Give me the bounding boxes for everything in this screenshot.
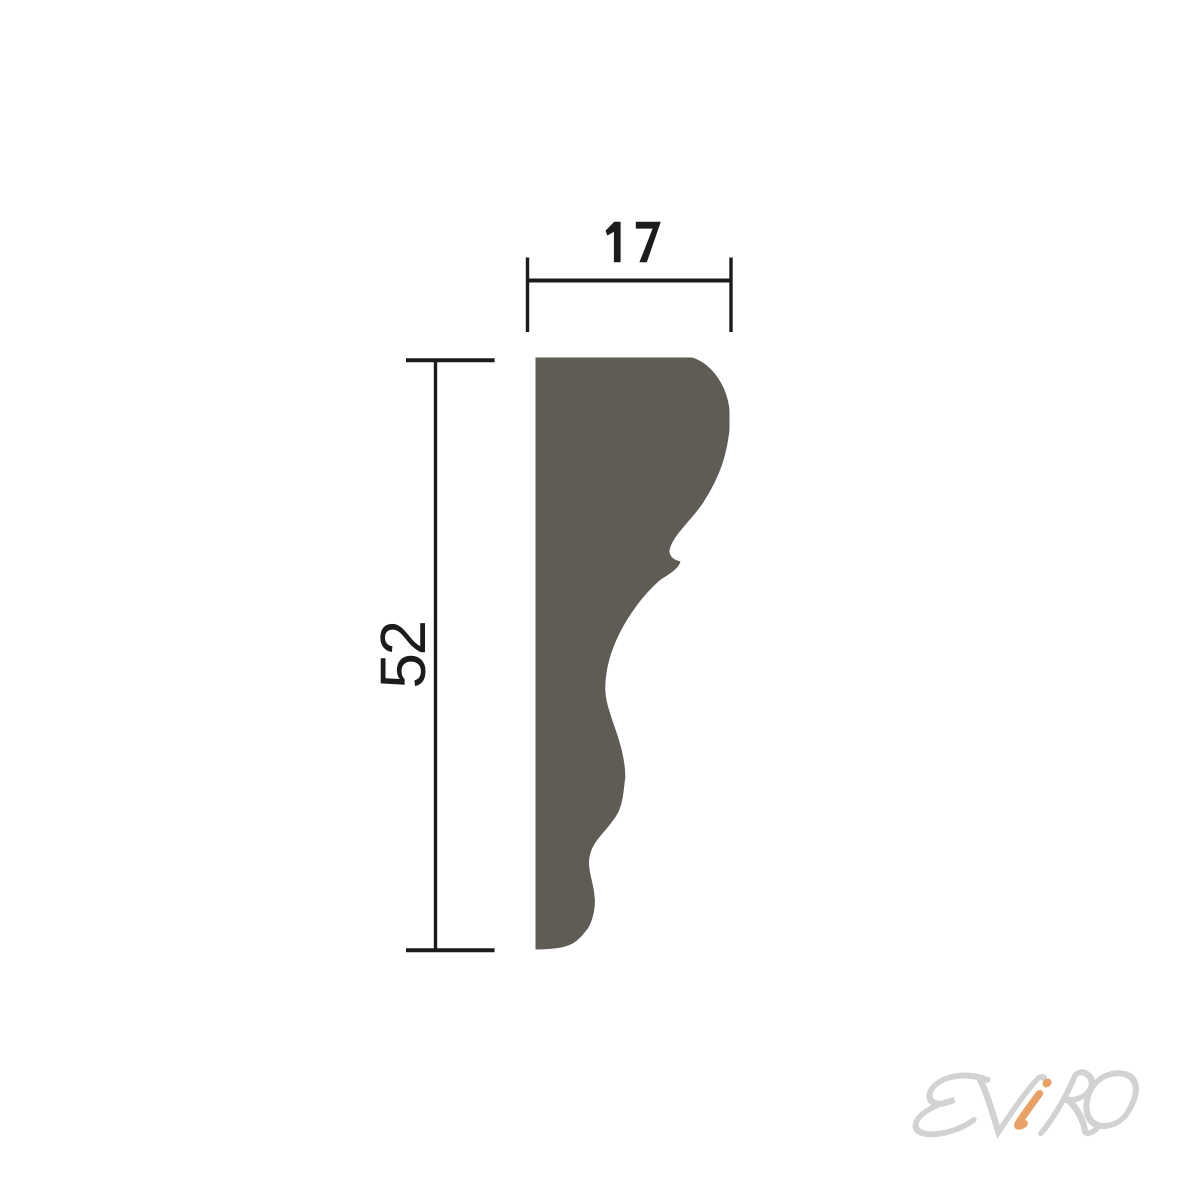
svg-text:52: 52 — [367, 622, 439, 688]
